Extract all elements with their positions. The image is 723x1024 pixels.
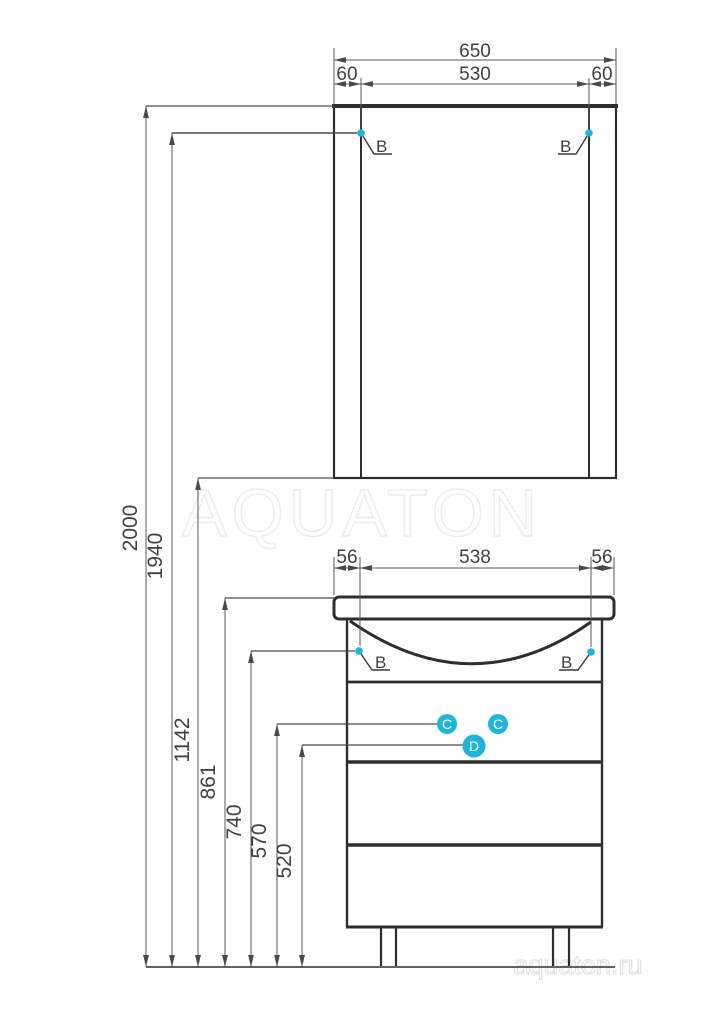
vanity-mount-right-dot — [587, 648, 595, 656]
mirror-width-dimensions: 650 60 530 60 — [334, 41, 616, 129]
height-740-label: 740 — [223, 804, 246, 839]
vanity-dim-56-right-label: 56 — [591, 547, 612, 568]
mirror-cabinet-outline — [334, 106, 616, 478]
mirror-mount-left-label: B — [376, 137, 387, 156]
installation-diagram: AQUATON aquaton.ru 650 60 530 60 B B — [0, 0, 723, 1024]
vanity-leg-left — [381, 928, 396, 966]
fitting-c1-label: C — [442, 716, 452, 732]
mirror-cabinet-inner-panels — [361, 107, 589, 477]
mirror-mount-points: B B — [357, 129, 593, 156]
mirror-dim-650-label: 650 — [459, 41, 491, 62]
brand-watermark: AQUATON — [182, 476, 542, 551]
mirror-mount-right-dot — [585, 129, 593, 137]
vanity-dim-56-left-label: 56 — [336, 547, 357, 568]
mirror-dim-60-right-label: 60 — [591, 64, 612, 85]
mirror-dim-530-label: 530 — [459, 64, 491, 85]
vanity-mount-left-dot — [355, 647, 363, 655]
mirror-dim-60-left-label: 60 — [336, 64, 357, 85]
mirror-cabinet — [332, 106, 618, 478]
height-520-label: 520 — [273, 843, 296, 878]
vanity-countertop — [334, 597, 614, 619]
mirror-mount-right-label: B — [560, 137, 571, 156]
diagram-canvas: AQUATON aquaton.ru 650 60 530 60 B B — [0, 0, 723, 1024]
height-2000-label: 2000 — [119, 505, 142, 552]
fitting-c2-label: C — [493, 716, 503, 732]
fitting-d-label: D — [469, 738, 479, 754]
height-861-label: 861 — [197, 764, 220, 799]
site-watermark: aquaton.ru — [513, 950, 642, 980]
vanity-mount-points: B B — [355, 647, 595, 672]
mirror-mount-left-dot — [357, 129, 365, 137]
height-570-label: 570 — [248, 823, 271, 858]
height-1940-label: 1940 — [144, 533, 167, 580]
vanity-mount-right-label: B — [561, 653, 572, 672]
fitting-badges: C C D — [437, 714, 508, 758]
vanity-mount-left-label: B — [375, 653, 386, 672]
vanity-dim-538-label: 538 — [459, 547, 491, 568]
height-1142-label: 1142 — [171, 717, 194, 762]
